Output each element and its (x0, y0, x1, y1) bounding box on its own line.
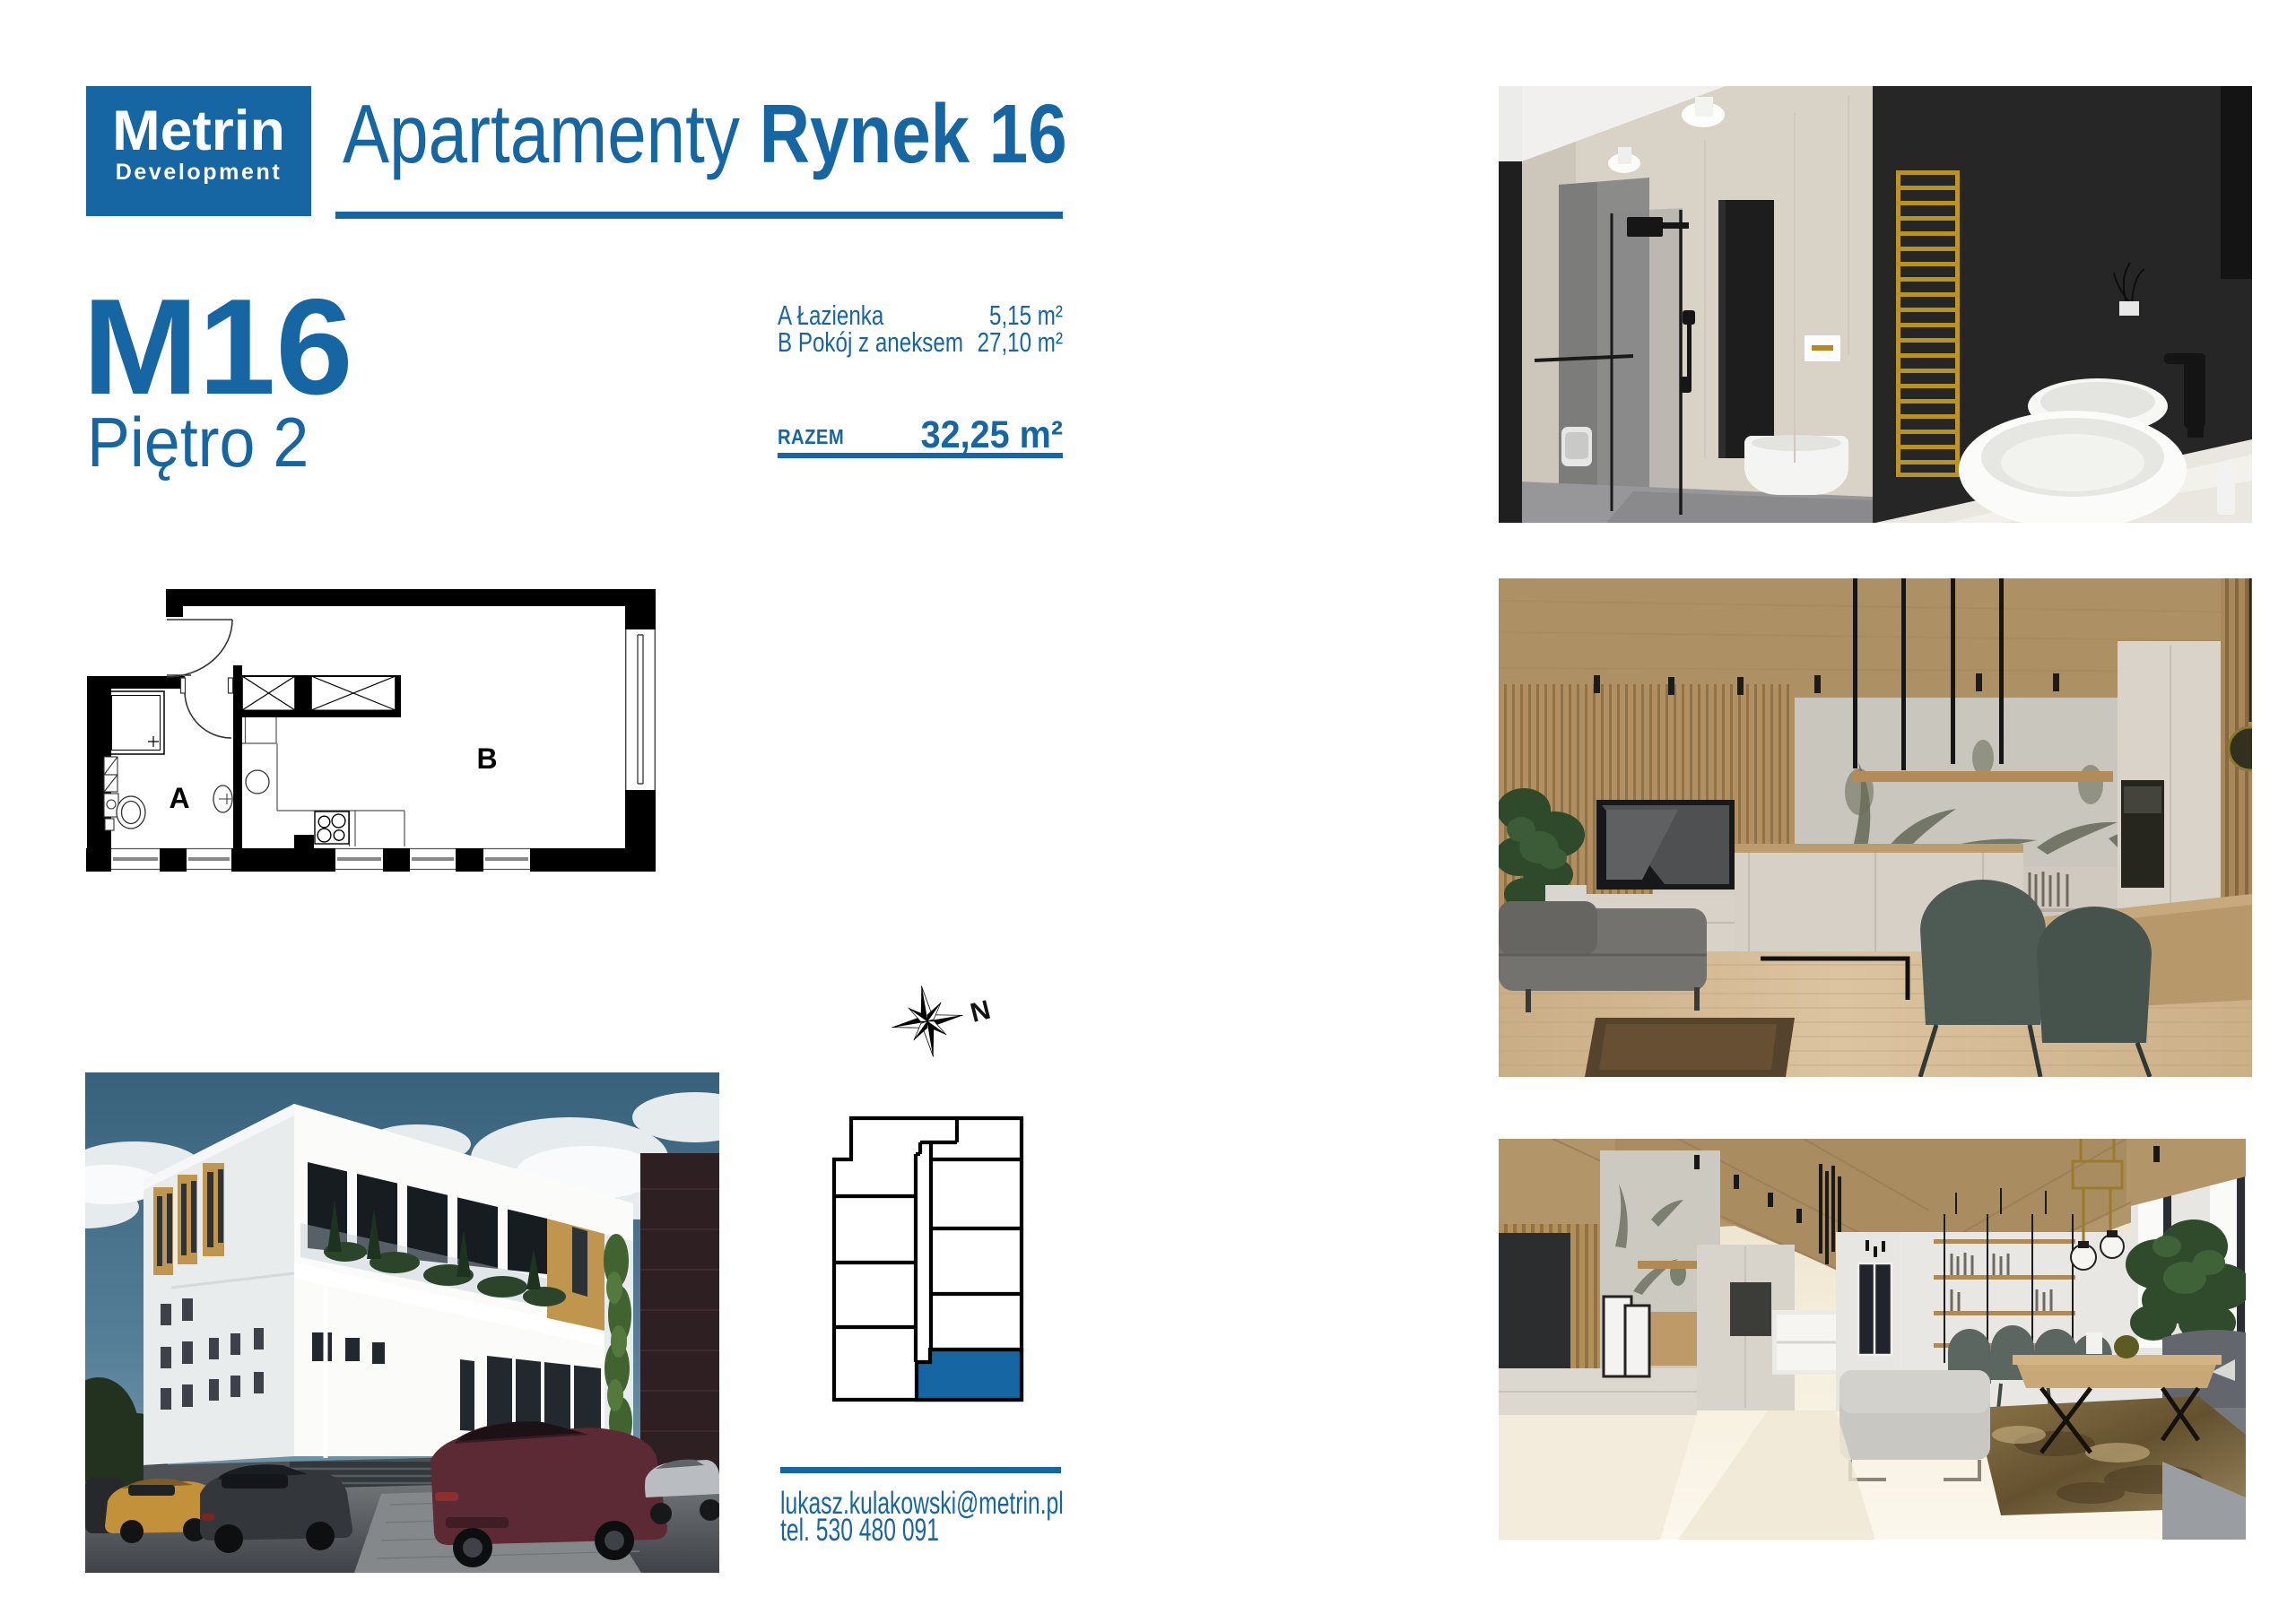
svg-text:A: A (169, 782, 189, 814)
svg-text:B: B (476, 742, 497, 775)
svg-text:N: N (968, 995, 994, 1028)
